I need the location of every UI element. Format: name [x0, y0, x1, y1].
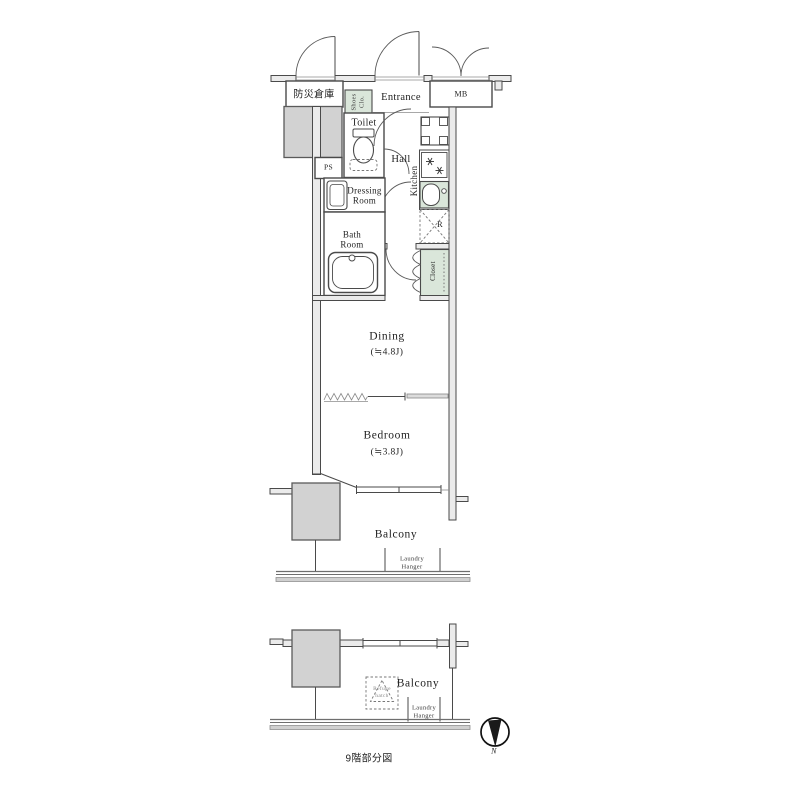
storage-label: 防災倉庫 [293, 89, 334, 101]
floor-caption: 9階部分図 [345, 753, 392, 765]
bath-room-label: Bath Room [340, 229, 363, 250]
refrigerator-space [420, 210, 449, 244]
refuge-hatch-label: Refuge hatch [373, 686, 391, 700]
lower-plan-drawing [270, 624, 470, 730]
balcony-lower-label: Balcony [397, 677, 440, 690]
floorplan: 防災倉庫 Shoes Clo. Entrance MB Toilet PS Ha… [0, 0, 785, 800]
balcony-upper-label: Balcony [375, 528, 418, 541]
hall-label: Hall [391, 154, 410, 166]
dining-label: Dining [369, 330, 405, 343]
structural-column-balcony [292, 483, 340, 540]
balcony-upper [270, 483, 470, 582]
dining-size-label: (≒4.8J) [371, 348, 404, 359]
hall-dining-wall [380, 244, 449, 250]
closet-label: Closet [429, 261, 437, 281]
entry-door-swings [296, 32, 489, 77]
kitchen-label: Kitchen [409, 166, 419, 197]
compass-north-label: N [491, 746, 497, 755]
dressing-room-label: Dressing Room [347, 186, 381, 207]
laundry-hanger-upper-label: Laundry Hanger [400, 556, 424, 573]
refrigerator-label: R [437, 220, 443, 230]
entrance-label: Entrance [381, 92, 421, 104]
room-partition [324, 393, 448, 402]
laundry-hanger-lower-label: Laundry Hanger [412, 705, 436, 722]
bath-room [313, 212, 386, 301]
bedroom-window-wall [321, 474, 469, 502]
floorplan-drawing [0, 0, 785, 800]
kitchen-fixtures [420, 117, 450, 210]
pipe-space-label: PS [324, 163, 333, 172]
shoes-closet-label: Shoes Clo. [350, 93, 367, 110]
north-compass-icon [481, 718, 509, 746]
toilet-label: Toilet [352, 117, 377, 129]
structural-column-lower [292, 630, 340, 687]
bedroom-label: Bedroom [364, 429, 411, 442]
meter-box-label: MB [454, 89, 467, 98]
bedroom-size-label: (≒3.8J) [371, 448, 404, 459]
